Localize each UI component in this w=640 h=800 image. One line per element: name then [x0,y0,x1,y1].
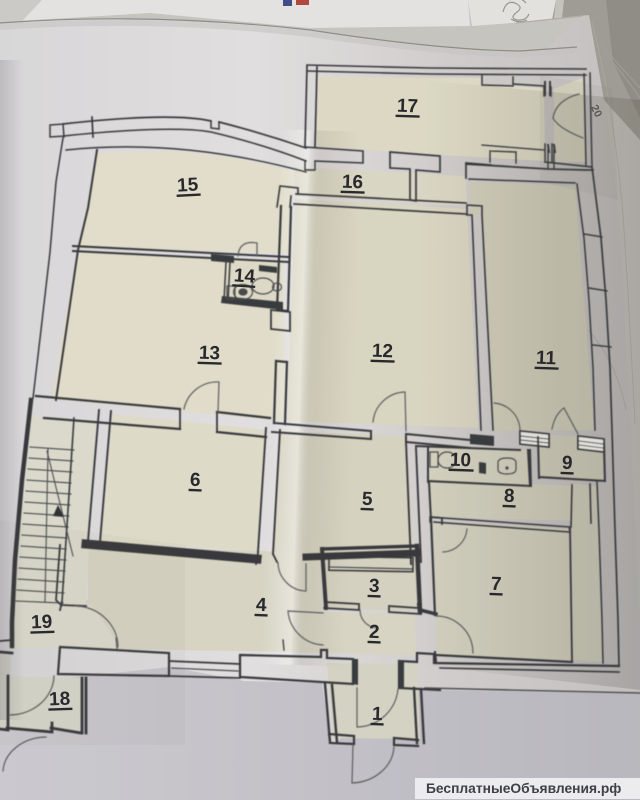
svg-text:БесплатныеОбъявления.рф: БесплатныеОбъявления.рф [426,781,621,796]
